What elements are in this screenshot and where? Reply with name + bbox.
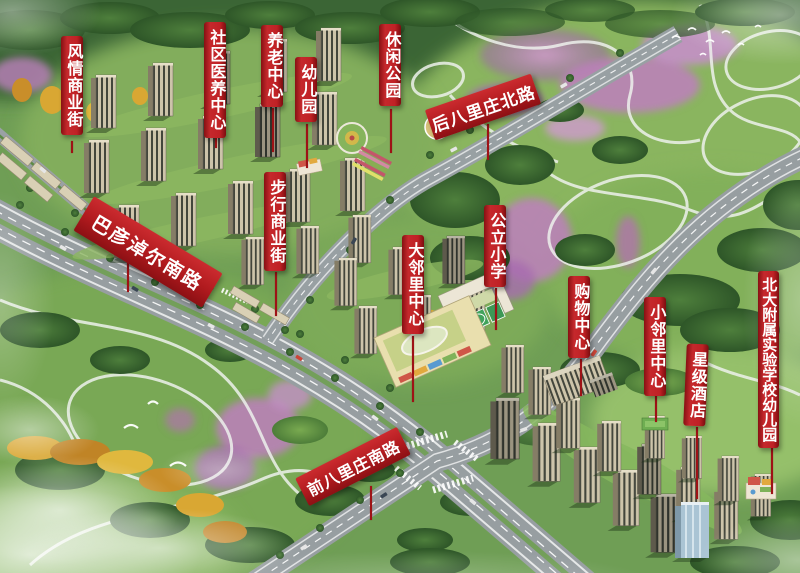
- banner-pedestrian-commercial-street: 步行商业街: [264, 172, 286, 271]
- pointer-line: [275, 272, 277, 316]
- pointer-line: [771, 446, 773, 494]
- pointer-line: [71, 141, 73, 153]
- banner-kindergarten: 幼儿园: [295, 57, 317, 122]
- pointer-line: [487, 124, 489, 160]
- pointer-line: [390, 109, 392, 153]
- banner-public-primary-school: 公立小学: [484, 205, 506, 287]
- pointer-line: [370, 486, 372, 520]
- pointer-line: [495, 288, 497, 330]
- banner-small-neighborhood-center: 小邻里中心: [644, 297, 666, 396]
- pointer-line: [272, 108, 274, 152]
- pointer-line: [127, 262, 129, 292]
- pointer-line: [412, 336, 414, 402]
- aerial-masterplan-rendering: 风情商业街 社区医养中心 养老中心 幼儿园 休闲公园 步行商业街 大邻里中心 公…: [0, 0, 800, 573]
- banner-elderly-care-center: 养老中心: [261, 25, 283, 107]
- banner-pku-affiliated-experimental-school-kindergarten: 北大附属实验学校幼儿园: [758, 271, 779, 448]
- pointer-line: [306, 124, 308, 168]
- banner-leisure-park: 休闲公园: [379, 24, 401, 106]
- banner-community-medical-care-center: 社区医养中心: [204, 22, 226, 138]
- banner-large-neighborhood-center: 大邻里中心: [402, 235, 424, 334]
- banner-star-hotel: 星级酒店: [683, 344, 709, 427]
- banner-folk-commercial-street: 风情商业街: [61, 36, 83, 135]
- banner-shopping-mall: 购物中心: [568, 276, 590, 358]
- pointer-line: [580, 359, 582, 396]
- pointer-line: [696, 427, 698, 499]
